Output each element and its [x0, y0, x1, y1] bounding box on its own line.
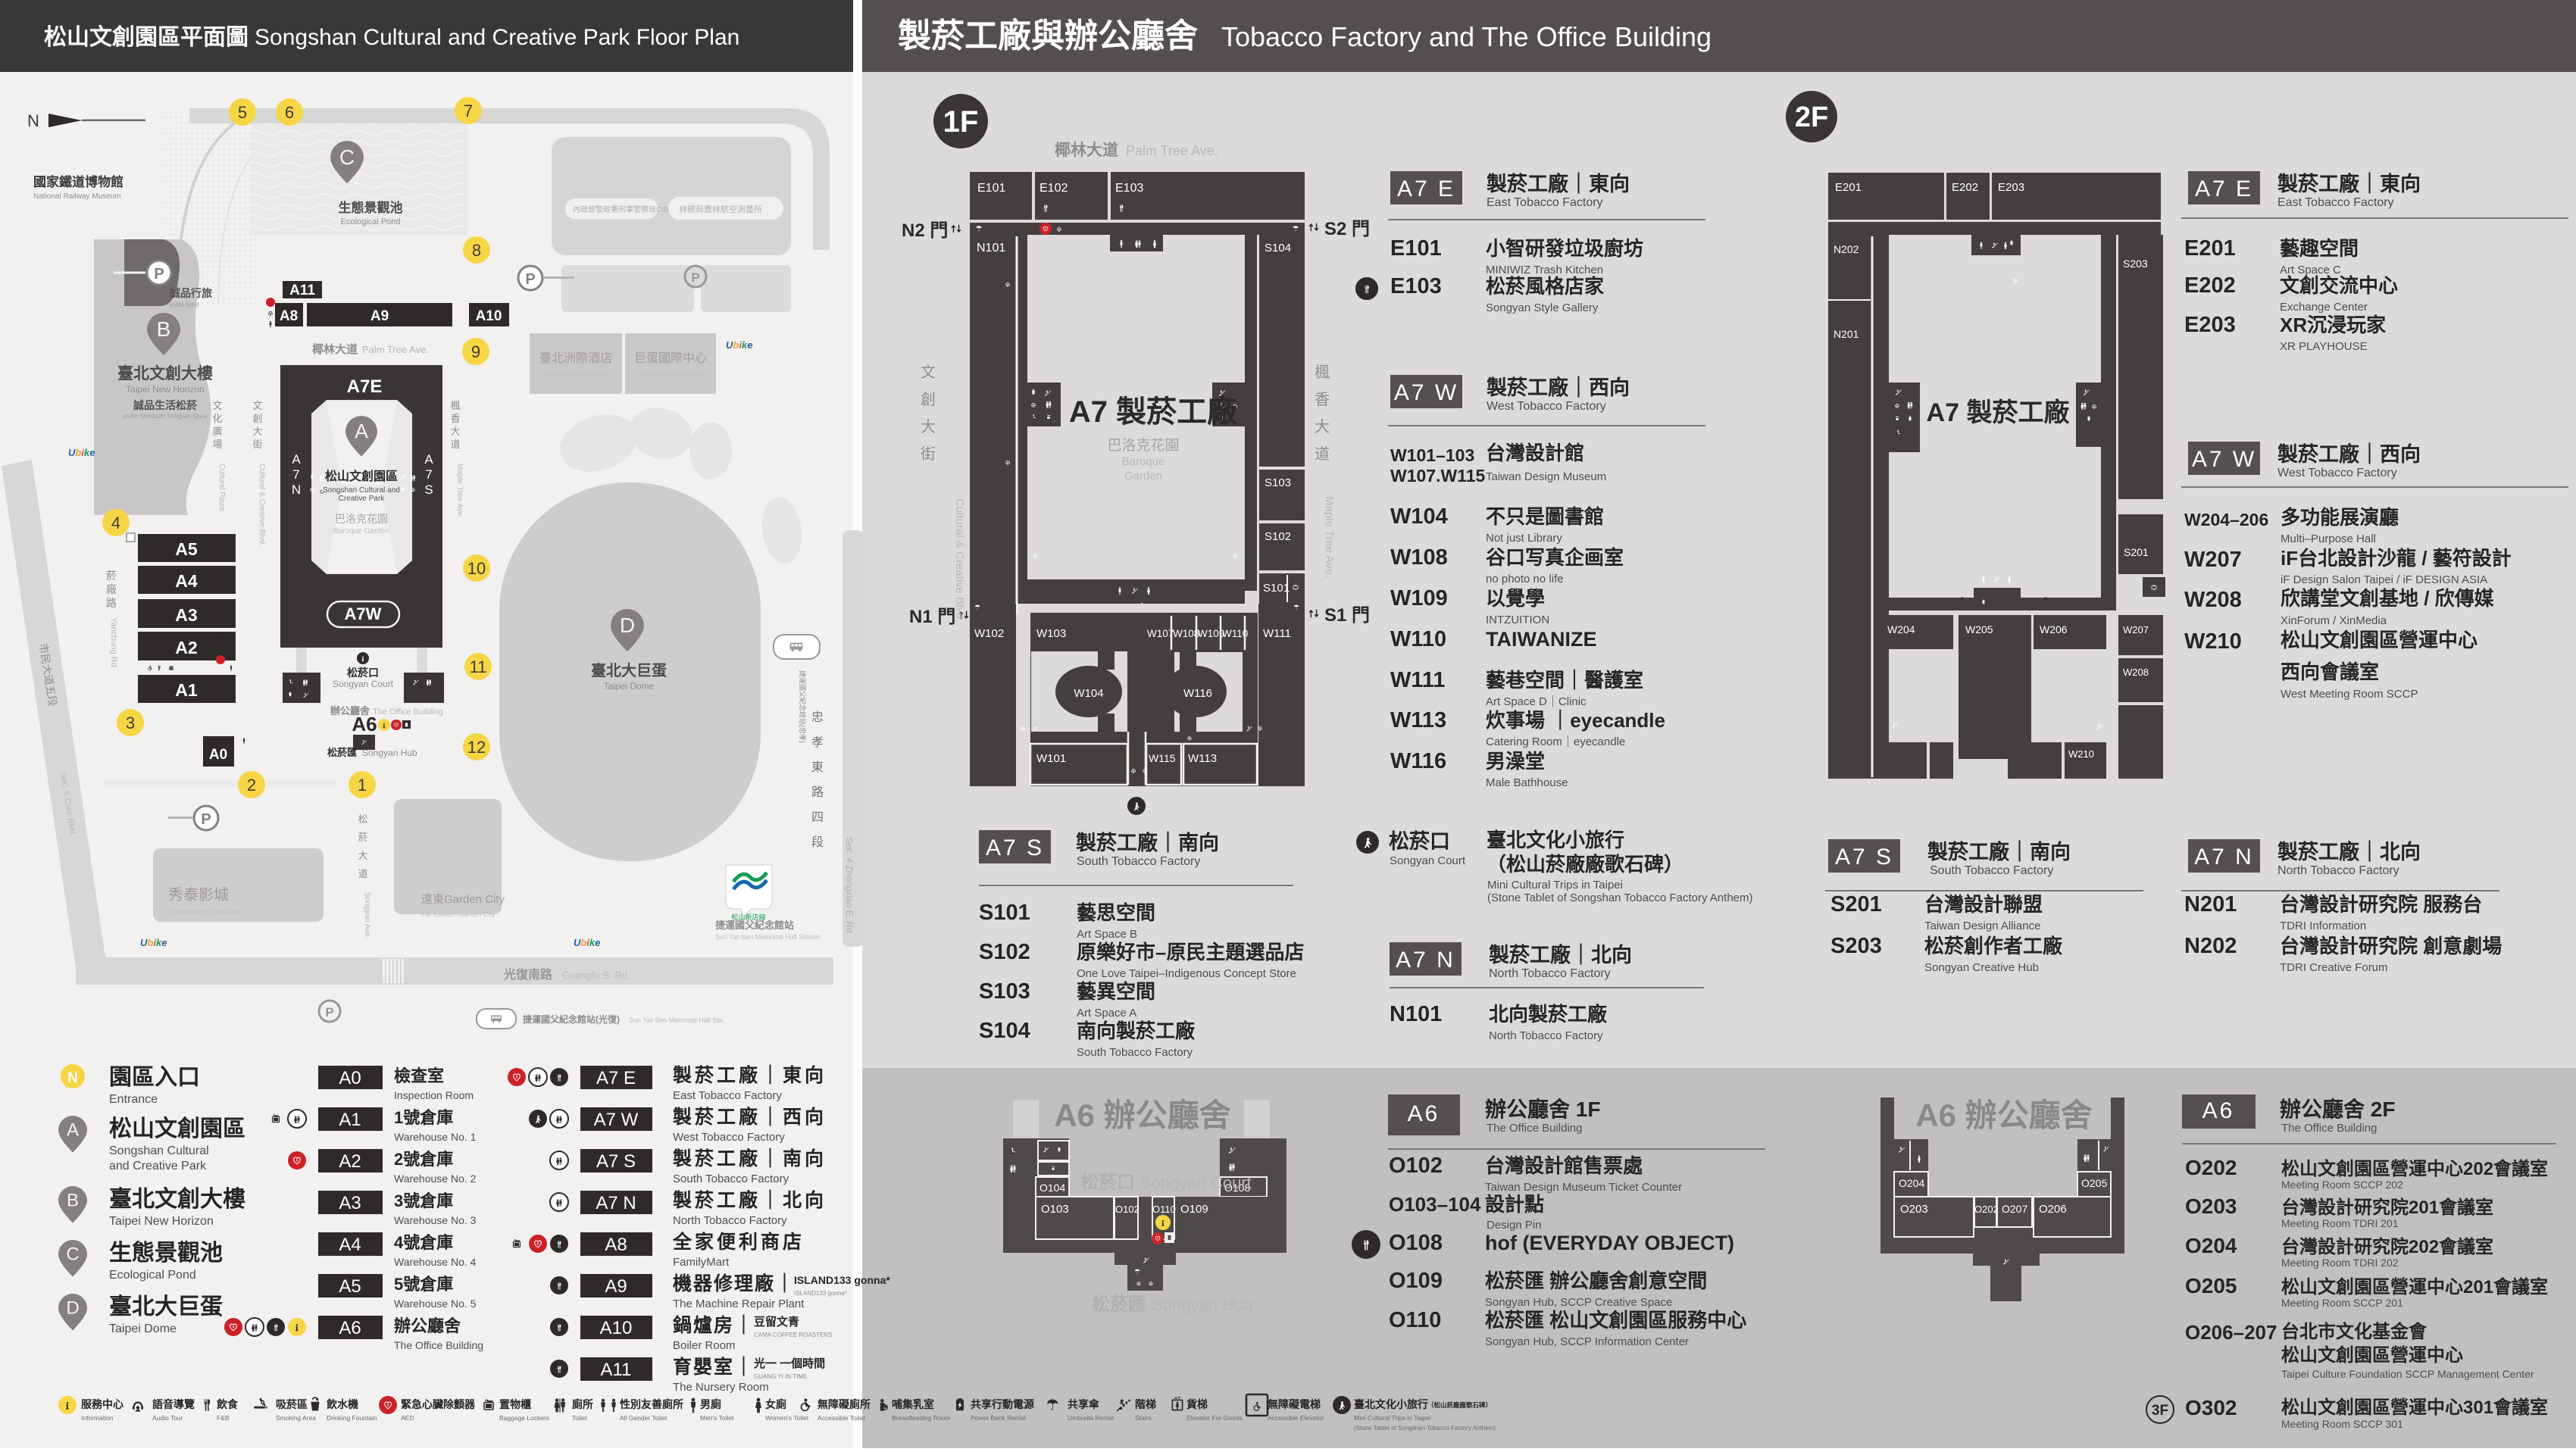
svg-text:臺北文創大樓: 臺北文創大樓: [117, 364, 213, 383]
svg-text:(Stone Tablet of Songshan Toba: (Stone Tablet of Songshan Tobacco Factor…: [1354, 1425, 1496, 1432]
svg-text:Art Space B: Art Space B: [1077, 928, 1137, 941]
svg-text:O202: O202: [2185, 1156, 2237, 1179]
svg-text:The Office Building: The Office Building: [1487, 1122, 1582, 1135]
svg-text:谷口写真企画室: 谷口写真企画室: [1486, 546, 1624, 569]
svg-text:全家便利商店: 全家便利商店: [672, 1231, 805, 1253]
svg-text:E203: E203: [2184, 313, 2236, 337]
svg-text:Yanchung Rd: Yanchung Rd: [109, 617, 118, 667]
svg-text:INTZUITION: INTZUITION: [1486, 614, 1549, 626]
svg-text:C: C: [339, 145, 355, 169]
svg-text:West Tobacco Factory: West Tobacco Factory: [673, 1131, 785, 1144]
svg-text:W210: W210: [2068, 748, 2094, 760]
svg-text:Meeting Room SCCP 202: Meeting Room SCCP 202: [2281, 1179, 2403, 1191]
svg-text:Baggage Lockers: Baggage Lockers: [499, 1414, 549, 1422]
svg-text:10: 10: [467, 559, 486, 578]
svg-text:FamilyMart: FamilyMart: [673, 1256, 730, 1269]
svg-text:4號倉庫: 4號倉庫: [394, 1233, 453, 1252]
svg-text:ISLAND133 gonna*: ISLAND133 gonna*: [794, 1274, 890, 1286]
svg-text:E102: E102: [1039, 182, 1068, 195]
svg-text:O302: O302: [2185, 1396, 2237, 1419]
svg-text:A7 W: A7 W: [594, 1110, 639, 1130]
svg-text:Baroque: Baroque: [1122, 455, 1165, 468]
svg-text:製菸工廠｜南向: 製菸工廠｜南向: [1927, 840, 2071, 863]
svg-text:O110: O110: [1389, 1308, 1441, 1332]
svg-text:W111: W111: [1390, 668, 1446, 692]
svg-text:臺北文化小旅行: 臺北文化小旅行: [1354, 1398, 1428, 1410]
svg-text:The Office Building: The Office Building: [373, 707, 443, 717]
svg-text:N1 門: N1 門: [909, 607, 955, 627]
svg-text:Creative Park: Creative Park: [339, 495, 386, 503]
svg-text:巴洛克花園: 巴洛克花園: [335, 513, 388, 525]
svg-text:O205: O205: [2185, 1274, 2237, 1297]
svg-text:Songyan Hub, SCCP Information: Songyan Hub, SCCP Information Center: [1485, 1335, 1689, 1348]
svg-text:Songyan Hub: Songyan Hub: [1152, 1295, 1252, 1314]
svg-text:松菸風格店家: 松菸風格店家: [1486, 275, 1604, 298]
svg-text:N2 門: N2 門: [902, 220, 948, 241]
svg-text:松山文創園區平面圖: 松山文創園區平面圖: [44, 24, 249, 50]
svg-text:生態景觀池: 生態景觀池: [109, 1240, 223, 1266]
svg-text:A3: A3: [339, 1193, 361, 1213]
svg-text:Tobacco Factory and The Office: Tobacco Factory and The Office Building: [1221, 21, 1712, 52]
svg-text:Ubike: Ubike: [140, 937, 167, 948]
svg-text:臺北大巨蛋: 臺北大巨蛋: [109, 1294, 223, 1319]
svg-text:N: N: [27, 111, 39, 130]
svg-text:Taipei Culture Foundation SCCP: Taipei Culture Foundation SCCP Managemen…: [2281, 1368, 2534, 1380]
svg-text:Women's Toilet: Women's Toilet: [765, 1414, 809, 1422]
svg-text:Elevator For Goods: Elevator For Goods: [1186, 1414, 1243, 1422]
svg-text:台灣設計研究院 創意劇場: 台灣設計研究院 創意劇場: [2280, 935, 2502, 957]
svg-text:辦公廳舍 2F: 辦公廳舍 2F: [2280, 1097, 2395, 1121]
svg-text:W109: W109: [1390, 586, 1448, 610]
svg-text:hof (EVERYDAY OBJECT): hof (EVERYDAY OBJECT): [1485, 1232, 1734, 1254]
svg-text:菸廠路: 菸廠路: [106, 570, 117, 609]
svg-text:Stairs: Stairs: [1135, 1414, 1152, 1422]
svg-text:A7 E: A7 E: [1397, 176, 1455, 201]
svg-text:S103: S103: [1265, 476, 1291, 489]
svg-text:松菸創作者工廠: 松菸創作者工廠: [1924, 935, 2063, 957]
svg-text:Meeting Room TDRI 202: Meeting Room TDRI 202: [2281, 1257, 2399, 1269]
svg-text:W103: W103: [1036, 627, 1066, 640]
svg-text:O104: O104: [1039, 1182, 1065, 1194]
svg-text:N101: N101: [977, 242, 1005, 254]
svg-text:藝思空間: 藝思空間: [1077, 901, 1155, 924]
svg-text:S104: S104: [1265, 242, 1291, 254]
svg-text:檢查室: 檢查室: [394, 1066, 444, 1085]
svg-text:O206–207: O206–207: [2185, 1321, 2277, 1344]
svg-text:藝趣空間: 藝趣空間: [2280, 237, 2359, 260]
svg-text:小智研發垃圾廚坊: 小智研發垃圾廚坊: [1486, 237, 1643, 260]
svg-text:松菸匯 辦公廳舍創意空間: 松菸匯 辦公廳舍創意空間: [1485, 1269, 1707, 1292]
svg-text:臺北洲際酒店: 臺北洲際酒店: [539, 351, 612, 365]
svg-text:西向會議室: 西向會議室: [2281, 660, 2379, 683]
svg-text:台灣設計館: 台灣設計館: [1486, 442, 1584, 464]
svg-text:林務局農林航空測量所: 林務局農林航空測量所: [679, 204, 762, 214]
svg-text:光復南路: 光復南路: [503, 967, 553, 982]
svg-text:機器修理廠｜: 機器修理廠｜: [673, 1272, 796, 1294]
svg-text:XR PLAYHOUSE: XR PLAYHOUSE: [2280, 340, 2368, 353]
svg-text:5: 5: [238, 103, 247, 122]
svg-text:E103: E103: [1390, 274, 1442, 298]
svg-text:North Tobacco Factory: North Tobacco Factory: [2277, 864, 2399, 877]
svg-text:A7 E: A7 E: [596, 1068, 636, 1088]
svg-text:Meeting Room TDRI 201: Meeting Room TDRI 201: [2281, 1217, 2399, 1229]
svg-text:臺北文化小旅行: 臺北文化小旅行: [1487, 829, 1624, 851]
svg-text:Baroque Garden: Baroque Garden: [333, 527, 389, 536]
svg-text:P: P: [691, 270, 699, 285]
svg-text:A7 S: A7 S: [596, 1151, 636, 1172]
svg-text:松菸匯 松山文創園區服務中心: 松菸匯 松山文創園區服務中心: [1485, 1309, 1746, 1332]
svg-text:A7E: A7E: [347, 376, 383, 397]
svg-text:Taipei Dome Intl Center: Taipei Dome Intl Center: [639, 371, 702, 378]
svg-text:O110: O110: [1152, 1204, 1176, 1215]
svg-text:Garden: Garden: [1124, 470, 1162, 482]
svg-text:GUANG YI IN TIME: GUANG YI IN TIME: [754, 1373, 807, 1380]
svg-text:W210: W210: [2184, 629, 2242, 654]
svg-text:Palm Tree Ave.: Palm Tree Ave.: [362, 344, 429, 355]
svg-text:2: 2: [247, 776, 256, 795]
svg-text:W115: W115: [1149, 752, 1176, 764]
svg-text:S104: S104: [979, 1019, 1030, 1043]
svg-text:Ubike: Ubike: [726, 339, 752, 351]
svg-text:A7 製菸工廠: A7 製菸工廠: [1927, 398, 2070, 427]
svg-text:臺北文創大樓: 臺北文創大樓: [109, 1186, 245, 1212]
svg-text:W204–206: W204–206: [2184, 510, 2268, 529]
svg-text:Inspection Room: Inspection Room: [394, 1089, 474, 1101]
svg-text:A9: A9: [605, 1276, 627, 1297]
svg-text:Warehouse No. 2: Warehouse No. 2: [394, 1173, 477, 1185]
svg-text:West Meeting Room SCCP: West Meeting Room SCCP: [2281, 688, 2418, 701]
svg-text:Ubike: Ubike: [68, 447, 95, 458]
svg-text:W116: W116: [1390, 749, 1446, 773]
svg-text:Taipei Dome: Taipei Dome: [604, 681, 655, 692]
svg-text:製菸工廠｜西向: 製菸工廠｜西向: [672, 1106, 827, 1128]
svg-text:South Tobacco Factory: South Tobacco Factory: [673, 1173, 789, 1185]
svg-text:巴洛克花園: 巴洛克花園: [1107, 437, 1179, 454]
svg-text:松山文創園區營運中心: 松山文創園區營運中心: [2281, 1344, 2463, 1366]
svg-text:O204: O204: [2185, 1234, 2237, 1257]
svg-text:S203: S203: [2123, 258, 2148, 270]
svg-text:no photo no life: no photo no life: [1486, 573, 1564, 585]
svg-text:Exchange Center: Exchange Center: [2280, 301, 2368, 314]
svg-text:O207: O207: [2002, 1203, 2027, 1215]
svg-text:O108: O108: [1389, 1231, 1443, 1255]
svg-text:W101–103: W101–103: [1390, 445, 1474, 465]
svg-text:A: A: [67, 1120, 79, 1141]
svg-text:W107.W115: W107.W115: [1390, 466, 1485, 486]
svg-text:A6: A6: [1408, 1101, 1440, 1126]
svg-text:iF台北設計沙龍 / 藝符設計: iF台北設計沙龍 / 藝符設計: [2281, 547, 2512, 570]
svg-text:S101: S101: [1263, 582, 1290, 595]
svg-text:W208: W208: [2184, 588, 2242, 612]
svg-text:W111: W111: [1263, 627, 1291, 640]
svg-text:製菸工廠｜東向: 製菸工廠｜東向: [2277, 172, 2421, 195]
svg-text:12: 12: [467, 738, 486, 757]
svg-text:A5: A5: [339, 1276, 361, 1297]
svg-text:6: 6: [285, 103, 294, 122]
svg-text:製菸工廠｜西向: 製菸工廠｜西向: [1487, 376, 1630, 399]
svg-text:One Love Taipei–Indigenous Con: One Love Taipei–Indigenous Concept Store: [1077, 967, 1296, 980]
svg-text:3: 3: [126, 714, 135, 732]
svg-text:貨梯: 貨梯: [1186, 1398, 1208, 1410]
svg-text:2號倉庫: 2號倉庫: [394, 1150, 453, 1169]
svg-text:Songyan Hub: Songyan Hub: [362, 748, 417, 758]
svg-text:O102: O102: [1115, 1204, 1140, 1215]
svg-text:O103: O103: [1041, 1203, 1069, 1216]
svg-text:W107: W107: [1147, 628, 1174, 639]
svg-text:South Tobacco Factory: South Tobacco Factory: [1930, 864, 2053, 877]
svg-text:Ubike: Ubike: [574, 937, 600, 948]
svg-text:W113: W113: [1390, 708, 1446, 732]
svg-text:W102: W102: [974, 627, 1004, 640]
svg-text:Boiler Room: Boiler Room: [673, 1339, 736, 1352]
svg-text:製菸工廠｜北向: 製菸工廠｜北向: [672, 1189, 827, 1211]
svg-text:iF Design Salon Taipei / iF DE: iF Design Salon Taipei / iF DESIGN ASIA: [2281, 573, 2487, 586]
svg-text:A7 製菸工廠: A7 製菸工廠: [1069, 395, 1237, 429]
svg-text:松菸口: 松菸口: [347, 667, 379, 679]
svg-text:飲水機: 飲水機: [326, 1398, 358, 1410]
svg-text:C: C: [66, 1244, 79, 1265]
svg-text:男廁: 男廁: [700, 1398, 721, 1410]
svg-text:松菸口: 松菸口: [1389, 830, 1450, 853]
svg-text:台北市文化基金會: 台北市文化基金會: [2281, 1321, 2428, 1342]
svg-text:W116: W116: [1183, 687, 1212, 700]
svg-text:男澡堂: 男澡堂: [1486, 750, 1545, 773]
svg-text:誠品生活松菸: 誠品生活松菸: [133, 399, 198, 411]
svg-text:Sec. 4 Zhongxiao E. Rd: Sec. 4 Zhongxiao E. Rd: [844, 837, 855, 933]
svg-text:Songyan Court: Songyan Court: [333, 679, 394, 689]
svg-text:台灣設計研究院 服務台: 台灣設計研究院 服務台: [2280, 893, 2482, 916]
svg-text:Breastfeeding Room: Breastfeeding Room: [892, 1414, 951, 1422]
svg-text:Umbrella Rental: Umbrella Rental: [1068, 1414, 1114, 1422]
svg-text:N202: N202: [2184, 934, 2237, 958]
svg-text:松山文創園區營運中心202會議室: 松山文創園區營運中心202會議室: [2281, 1158, 2548, 1179]
svg-text:A7 E: A7 E: [2195, 176, 2253, 201]
svg-text:松山文創園區: 松山文創園區: [109, 1116, 245, 1141]
svg-text:Male Bathhouse: Male Bathhouse: [1486, 776, 1568, 789]
svg-text:（松山菸廠廠歌石碑）: （松山菸廠廠歌石碑）: [1427, 1401, 1492, 1409]
svg-text:A7 S: A7 S: [986, 835, 1044, 860]
svg-text:East Tobacco Factory: East Tobacco Factory: [2277, 196, 2394, 209]
svg-text:W104: W104: [1390, 504, 1448, 529]
svg-text:P: P: [154, 266, 164, 283]
svg-text:Maple Tree Ave.: Maple Tree Ave.: [1323, 496, 1336, 578]
svg-text:E202: E202: [2184, 273, 2236, 298]
svg-text:台灣設計研究院201會議室: 台灣設計研究院201會議室: [2281, 1197, 2493, 1218]
svg-text:A11: A11: [601, 1360, 632, 1380]
svg-text:North Tobacco Factory: North Tobacco Factory: [673, 1214, 787, 1227]
svg-text:製菸工廠｜南向: 製菸工廠｜南向: [1076, 831, 1219, 854]
svg-text:B: B: [157, 317, 171, 341]
svg-text:松菸匯: 松菸匯: [1092, 1294, 1146, 1315]
svg-text:Songyan Court: Songyan Court: [1140, 1173, 1252, 1192]
svg-text:A1: A1: [339, 1110, 361, 1130]
svg-text:光一 一個時間: 光一 一個時間: [753, 1357, 825, 1370]
svg-text:Warehouse No. 3: Warehouse No. 3: [394, 1214, 477, 1226]
svg-text:Songyan Court: Songyan Court: [1390, 854, 1466, 867]
svg-text:(Stone Tablet of Songshan Toba: (Stone Tablet of Songshan Tobacco Factor…: [1487, 891, 1753, 904]
svg-text:S1 門: S1 門: [1324, 605, 1370, 626]
svg-text:捷運國父紀念館站(忠孝): 捷運國父紀念館站(忠孝): [799, 670, 807, 743]
svg-text:Toilet: Toilet: [572, 1414, 587, 1422]
svg-text:O102: O102: [1389, 1154, 1443, 1178]
svg-text:松山文創園區營運中心: 松山文創園區營運中心: [2281, 629, 2478, 651]
svg-text:Songyan Style Gallery: Songyan Style Gallery: [1486, 301, 1599, 314]
svg-text:A9: A9: [370, 308, 389, 324]
svg-text:製菸工廠｜北向: 製菸工廠｜北向: [2277, 840, 2421, 863]
svg-text:XinForum / XinMedia: XinForum / XinMedia: [2281, 614, 2387, 627]
svg-text:Taipei New Horizon: Taipei New Horizon: [126, 384, 204, 395]
svg-text:製菸工廠｜東向: 製菸工廠｜東向: [672, 1064, 827, 1086]
svg-text:A11: A11: [289, 283, 315, 298]
svg-text:欣講堂文創基地 / 欣傳媒: 欣講堂文創基地 / 欣傳媒: [2281, 587, 2495, 610]
svg-text:Mini Cultural Trips in Taipei: Mini Cultural Trips in Taipei: [1354, 1414, 1431, 1422]
svg-text:Meeting Room SCCP 201: Meeting Room SCCP 201: [2281, 1297, 2403, 1309]
svg-text:B: B: [67, 1191, 79, 1211]
svg-text:台灣設計研究院202會議室: 台灣設計研究院202會議室: [2281, 1236, 2493, 1257]
svg-text:National Railway Museum: National Railway Museum: [33, 192, 121, 201]
svg-text:A7 N: A7 N: [596, 1193, 636, 1213]
svg-text:原樂好市–原民主題選品店: 原樂好市–原民主題選品店: [1077, 941, 1304, 963]
svg-text:製菸工廠｜南向: 製菸工廠｜南向: [672, 1148, 827, 1169]
svg-text:Ecological Pond: Ecological Pond: [109, 1269, 196, 1282]
svg-text:製菸工廠｜西向: 製菸工廠｜西向: [2277, 442, 2421, 466]
svg-text:服務中心: 服務中心: [81, 1398, 123, 1410]
svg-text:East Tobacco Factory: East Tobacco Factory: [673, 1089, 782, 1102]
svg-text:階梯: 階梯: [1135, 1398, 1156, 1410]
svg-text:Information: Information: [81, 1414, 114, 1422]
svg-text:A1: A1: [175, 680, 198, 700]
svg-text:Multi–Purpose Hall: Multi–Purpose Hall: [2281, 532, 2376, 545]
svg-text:台灣設計聯盟: 台灣設計聯盟: [1924, 893, 2043, 916]
svg-text:文創交流中心: 文創交流中心: [2280, 274, 2398, 297]
svg-text:N202: N202: [1834, 243, 1859, 255]
svg-text:E201: E201: [1835, 181, 1862, 194]
svg-text:炊事場 ｜eyecandle: 炊事場 ｜eyecandle: [1486, 709, 1665, 732]
svg-text:緊急心臟除顫器: 緊急心臟除顫器: [401, 1398, 476, 1410]
svg-text:8: 8: [472, 241, 481, 260]
svg-text:哺集乳室: 哺集乳室: [892, 1398, 934, 1410]
svg-text:A0: A0: [339, 1068, 361, 1088]
svg-text:A6 辦公廳舍: A6 辦公廳舍: [1915, 1098, 2092, 1133]
svg-text:Maple Tree Ave.: Maple Tree Ave.: [455, 464, 464, 518]
svg-text:製菸工廠與辦公廳舍: 製菸工廠與辦公廳舍: [898, 17, 1198, 55]
svg-text:A7 N: A7 N: [2194, 845, 2254, 870]
svg-text:N201: N201: [2184, 892, 2237, 916]
svg-text:S102: S102: [1265, 530, 1291, 543]
svg-text:Mini Cultural Trips in Taipei: Mini Cultural Trips in Taipei: [1487, 879, 1623, 891]
svg-text:A2: A2: [339, 1151, 361, 1172]
svg-text:椰林大道: 椰林大道: [1055, 141, 1118, 159]
svg-text:Sun Yat-Sen Memorial Hall Sta.: Sun Yat-Sen Memorial Hall Sta.: [629, 1016, 724, 1024]
svg-text:A7 W: A7 W: [2192, 447, 2256, 472]
svg-text:1: 1: [358, 776, 367, 795]
svg-text:Sun Yat-Sen Memorial Hall Stat: Sun Yat-Sen Memorial Hall Station: [715, 933, 820, 941]
svg-text:南向製菸工廠: 南向製菸工廠: [1077, 1020, 1196, 1042]
svg-text:The Office Building: The Office Building: [2281, 1122, 2377, 1135]
svg-text:內政部警政署刑事警察局CIB: 內政部警政署刑事警察局CIB: [573, 205, 669, 214]
svg-text:E101: E101: [1390, 236, 1442, 261]
svg-text:A7S: A7S: [424, 452, 433, 497]
svg-text:W101: W101: [1036, 752, 1066, 765]
svg-text:藝巷空間｜醫護室: 藝巷空間｜醫護室: [1486, 669, 1643, 692]
svg-text:North Tobacco Factory: North Tobacco Factory: [1489, 967, 1611, 980]
svg-text:誠品行旅: 誠品行旅: [170, 287, 212, 299]
svg-text:W108: W108: [1390, 545, 1448, 570]
svg-text:無障礙電梯: 無障礙電梯: [1268, 1398, 1321, 1410]
svg-text:W104: W104: [1074, 687, 1103, 700]
svg-text:以覺學: 以覺學: [1486, 587, 1545, 610]
svg-text:置物櫃: 置物櫃: [499, 1398, 531, 1410]
svg-text:Accessible Elevator: Accessible Elevator: [1268, 1414, 1324, 1422]
svg-text:S102: S102: [979, 940, 1030, 964]
svg-text:不只是圖書館: 不只是圖書館: [1486, 505, 1604, 528]
svg-text:P: P: [525, 271, 535, 288]
svg-text:Not just Library: Not just Library: [1486, 532, 1562, 545]
svg-text:W208: W208: [2123, 667, 2149, 678]
svg-text:飲食: 飲食: [216, 1398, 239, 1410]
svg-text:松菸匯: 松菸匯: [327, 747, 357, 758]
svg-text:豆留文青: 豆留文青: [754, 1315, 799, 1329]
svg-text:鍋爐房｜: 鍋爐房｜: [673, 1314, 755, 1336]
svg-text:W205: W205: [1965, 623, 1993, 635]
svg-text:A6: A6: [352, 713, 377, 735]
svg-text:松山文創園區: 松山文創園區: [325, 469, 398, 483]
svg-text:O203: O203: [2185, 1194, 2237, 1218]
svg-text:Men's Toilet: Men's Toilet: [700, 1414, 734, 1422]
svg-text:E101: E101: [977, 182, 1005, 195]
svg-text:Power Bank Rental: Power Bank Rental: [971, 1414, 1026, 1422]
svg-text:設計點: 設計點: [1485, 1193, 1544, 1216]
svg-text:W204: W204: [1887, 623, 1915, 635]
svg-text:Meeting Room SCCP 301: Meeting Room SCCP 301: [2281, 1418, 2403, 1430]
svg-text:Cultural & Creative Blvd.: Cultural & Creative Blvd.: [258, 464, 266, 546]
svg-text:製菸工廠｜東向: 製菸工廠｜東向: [1487, 172, 1630, 195]
svg-text:South Tobacco Factory: South Tobacco Factory: [1077, 855, 1200, 868]
svg-text:性別友善廁所: 性別友善廁所: [620, 1398, 683, 1410]
svg-text:TDRI Information: TDRI Information: [2280, 920, 2366, 932]
svg-text:O205: O205: [2081, 1177, 2107, 1189]
svg-text:Cultural Plaza: Cultural Plaza: [217, 464, 226, 511]
svg-text:女廁: 女廁: [765, 1398, 786, 1410]
svg-text:S203: S203: [1830, 934, 1882, 958]
svg-text:F&B: F&B: [217, 1414, 230, 1422]
svg-text:P: P: [201, 811, 211, 828]
svg-text:無障礙廁所: 無障礙廁所: [818, 1398, 871, 1410]
svg-text:A4: A4: [339, 1235, 361, 1255]
svg-text:East Tobacco Factory: East Tobacco Factory: [1487, 196, 1603, 209]
svg-text:W113: W113: [1188, 752, 1217, 765]
svg-text:A0: A0: [209, 747, 227, 763]
svg-text:AED: AED: [401, 1414, 414, 1422]
svg-text:國家鐵道博物館: 國家鐵道博物館: [33, 174, 123, 189]
svg-text:1號倉庫: 1號倉庫: [394, 1108, 453, 1127]
svg-text:A7 W: A7 W: [1394, 380, 1458, 405]
svg-text:A7N: A7N: [292, 452, 301, 497]
svg-text:A7 N: A7 N: [1396, 948, 1455, 973]
svg-text:Art Space A: Art Space A: [1077, 1007, 1136, 1020]
svg-text:O206: O206: [2039, 1203, 2067, 1216]
svg-text:A4: A4: [175, 571, 198, 591]
svg-text:eslite Spectrum Songyan Store: eslite Spectrum Songyan Store: [123, 413, 208, 420]
svg-text:辦公廳舍 1F: 辦公廳舍 1F: [1485, 1097, 1600, 1121]
svg-text:S201: S201: [1830, 892, 1882, 916]
svg-text:O109: O109: [1389, 1269, 1443, 1293]
svg-text:共享傘: 共享傘: [1068, 1398, 1100, 1410]
svg-text:松菸口: 松菸口: [1080, 1173, 1135, 1193]
svg-text:S101: S101: [979, 901, 1030, 925]
svg-text:and Creative Park: and Creative Park: [109, 1160, 207, 1173]
svg-text:Design Pin: Design Pin: [1487, 1219, 1542, 1232]
